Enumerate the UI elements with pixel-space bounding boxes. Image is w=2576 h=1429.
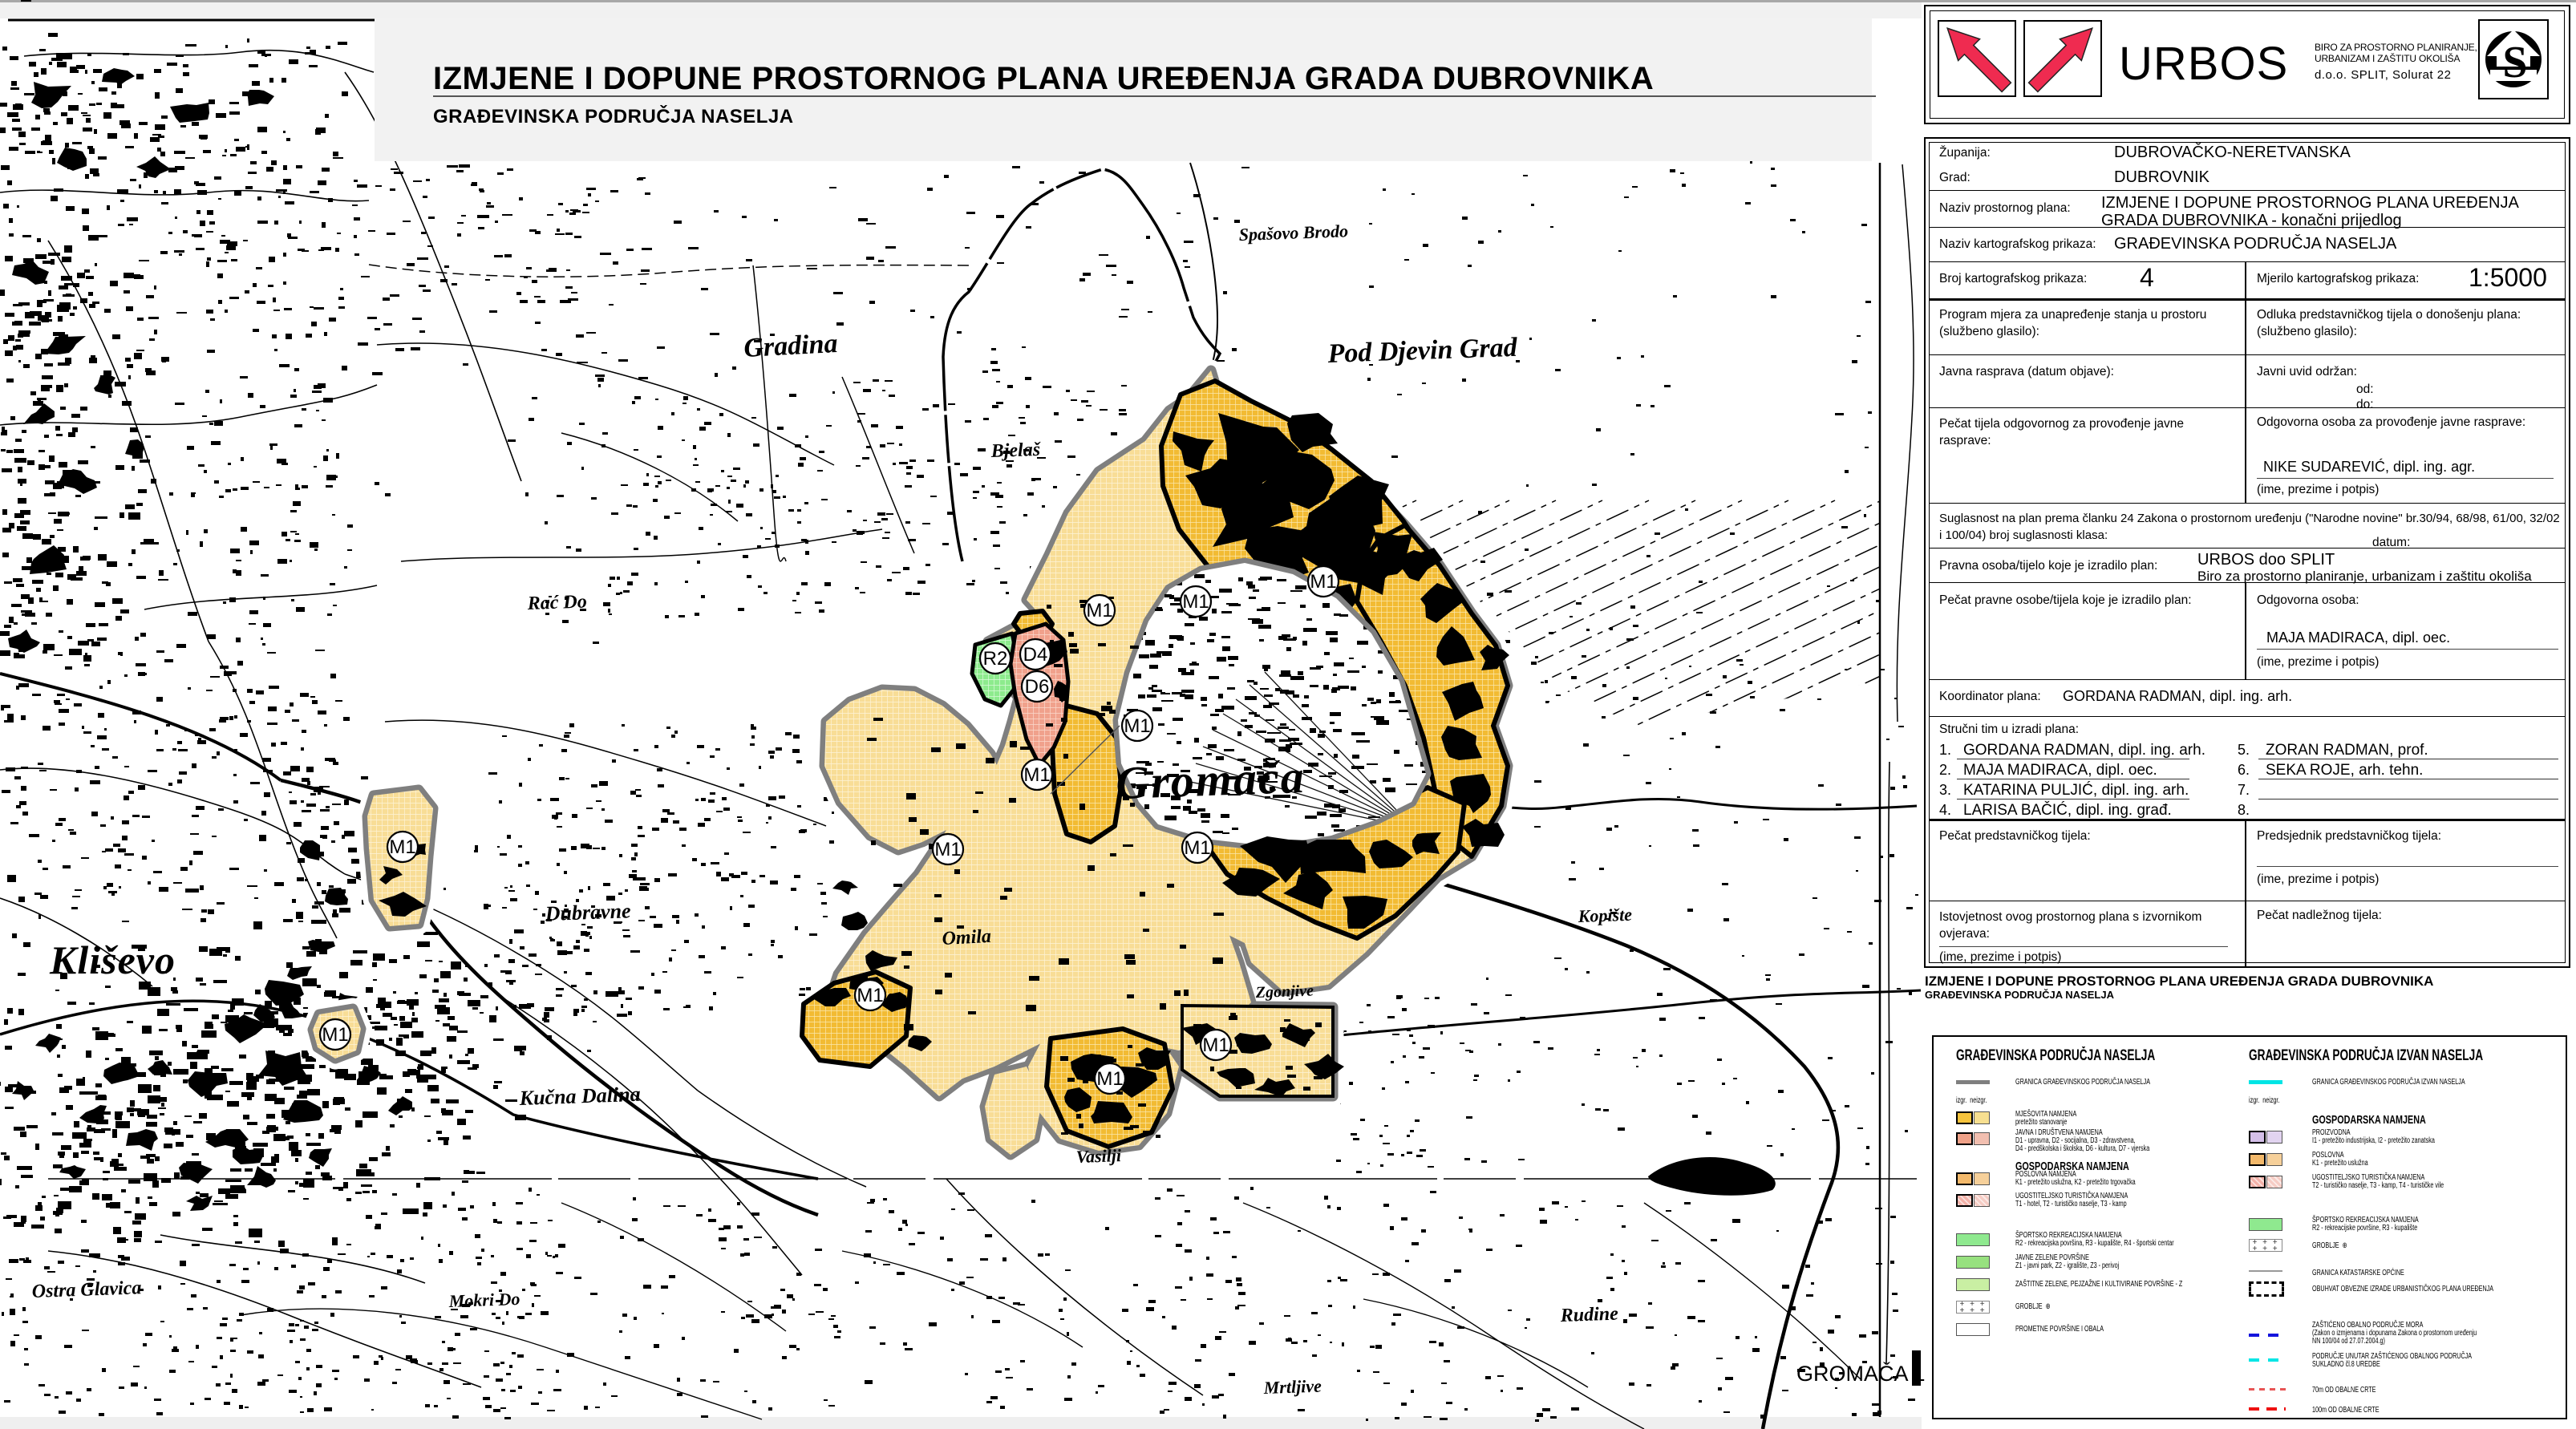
- svg-text:M1: M1: [1202, 1034, 1229, 1056]
- svg-text:Kliševo: Kliševo: [49, 937, 176, 982]
- svg-text:Spašovo Brodo: Spašovo Brodo: [1238, 221, 1348, 245]
- svg-text:Zgonjive: Zgonjive: [1254, 982, 1314, 1002]
- svg-text:M1: M1: [1096, 1068, 1123, 1090]
- svg-text:GROMAČA 1: GROMAČA 1: [1796, 1361, 1926, 1386]
- svg-text:M1: M1: [1182, 591, 1209, 613]
- svg-text:Kopište: Kopište: [1577, 905, 1632, 926]
- svg-text:Rudine: Rudine: [1559, 1303, 1618, 1326]
- svg-text:Gromača: Gromača: [1115, 751, 1306, 809]
- svg-text:Ostra Glavica: Ostra Glavica: [31, 1277, 141, 1302]
- svg-text:Mokri Do: Mokri Do: [448, 1289, 520, 1311]
- svg-text:D6: D6: [1025, 676, 1050, 698]
- svg-text:Vasilji: Vasilji: [1075, 1145, 1122, 1167]
- svg-text:M1: M1: [389, 836, 415, 858]
- svg-text:S: S: [2502, 38, 2527, 87]
- svg-text:M1: M1: [322, 1024, 348, 1046]
- svg-text:M1: M1: [1184, 837, 1210, 859]
- svg-text:M1: M1: [1023, 764, 1050, 786]
- svg-text:Bjelaš: Bjelaš: [990, 439, 1042, 462]
- svg-text:Dubravne: Dubravne: [544, 899, 631, 925]
- svg-text:M1: M1: [1124, 715, 1150, 737]
- svg-text:Mrtljive: Mrtljive: [1262, 1375, 1322, 1398]
- svg-text:M1: M1: [1310, 571, 1336, 593]
- svg-text:M1: M1: [857, 985, 883, 1006]
- svg-text:M1: M1: [934, 839, 961, 860]
- svg-text:Gradina: Gradina: [743, 329, 838, 363]
- svg-text:D4: D4: [1023, 644, 1048, 666]
- svg-text:M1: M1: [1086, 600, 1112, 621]
- svg-text:Rać Do: Rać Do: [526, 591, 587, 614]
- svg-text:Kučna Dalina: Kučna Dalina: [518, 1083, 641, 1110]
- svg-text:R2: R2: [983, 648, 1008, 670]
- svg-text:Omila: Omila: [942, 926, 992, 949]
